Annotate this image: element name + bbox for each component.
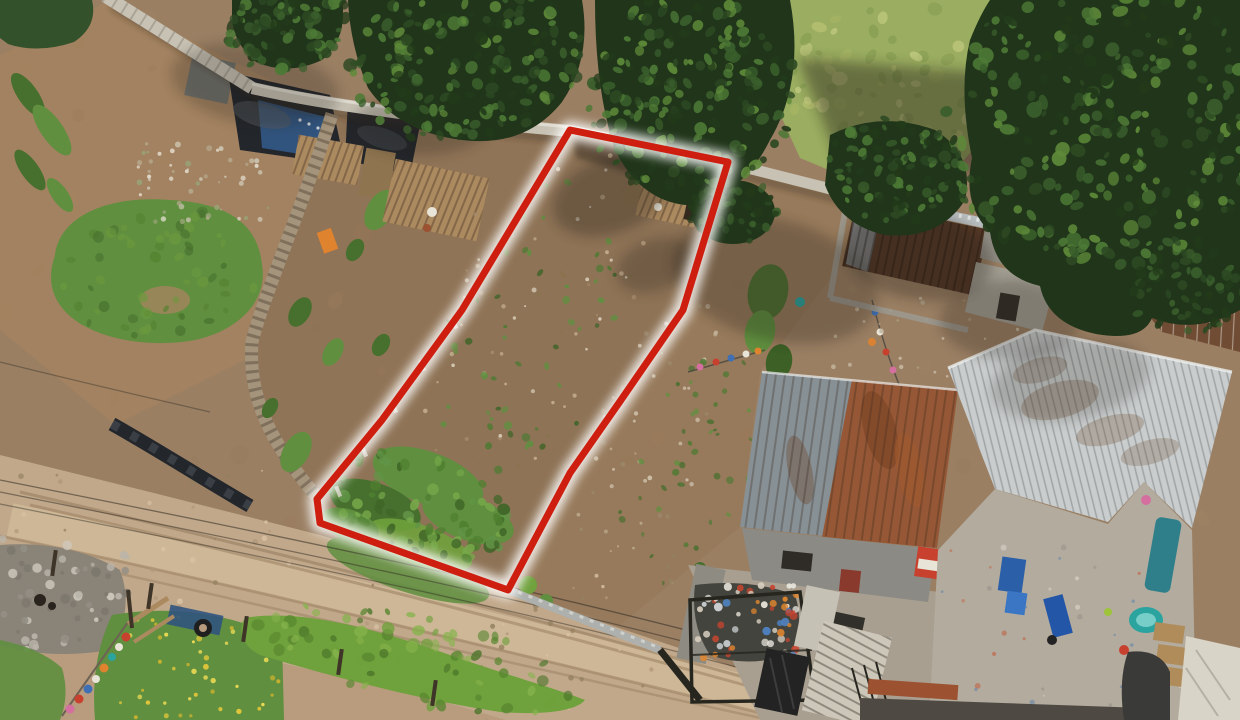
plot-debris-dot bbox=[491, 351, 495, 355]
leftyard-debris-dot bbox=[258, 217, 263, 222]
plot-debris-dot bbox=[563, 405, 566, 408]
road-stones-2-dot bbox=[570, 628, 575, 633]
leftyard-debris-dot bbox=[255, 164, 259, 168]
trash-bits-dot bbox=[702, 602, 707, 607]
road-stones-2-dot bbox=[502, 623, 504, 625]
plot-debris-dot bbox=[478, 462, 481, 465]
rubble-stones-dot bbox=[122, 567, 130, 575]
blue-crate bbox=[1005, 591, 1028, 616]
rubble-stones-dot bbox=[32, 633, 38, 639]
canopy-2-dot bbox=[429, 104, 438, 117]
rubble-stones-dot bbox=[91, 567, 101, 577]
plot-debris-dot bbox=[524, 305, 526, 307]
road-stones-2-dot bbox=[601, 585, 604, 588]
orange-pot bbox=[868, 338, 876, 346]
road-stones-dot bbox=[18, 473, 24, 479]
leftyard-debris-dot bbox=[214, 205, 219, 210]
yardtop-specks-dot bbox=[946, 375, 949, 378]
trash-bits-dot bbox=[717, 622, 724, 629]
rightstrip-debris-dot bbox=[610, 448, 613, 451]
flowers-dot bbox=[188, 697, 191, 700]
laundry-item bbox=[728, 355, 735, 362]
white-tarp bbox=[1178, 636, 1240, 720]
laundry-item bbox=[100, 664, 109, 673]
road-stones-dot bbox=[22, 512, 27, 517]
rubble-stones-dot bbox=[18, 594, 23, 599]
leftyard-debris-dot bbox=[186, 217, 191, 222]
flowers-dot bbox=[204, 655, 209, 660]
leftyard-debris-dot bbox=[196, 181, 200, 185]
flowers-dot bbox=[218, 707, 222, 711]
rightstrip-debris-dot bbox=[665, 514, 669, 518]
courtyard-specks-dot bbox=[989, 566, 992, 569]
leftyard-debris-dot bbox=[147, 151, 150, 154]
flowers-dot bbox=[271, 694, 274, 697]
leftyard-debris-dot bbox=[172, 170, 175, 173]
trash-bits-dot bbox=[732, 626, 739, 633]
rightstrip-debris-dot bbox=[638, 344, 642, 348]
trash-bits-dot bbox=[724, 583, 732, 591]
trash-bits-dot bbox=[730, 645, 736, 651]
plot-debris-dot bbox=[596, 314, 598, 316]
screenshot-stage bbox=[0, 0, 1240, 720]
flowers-dot bbox=[191, 669, 196, 674]
rubble-stones-dot bbox=[33, 644, 39, 650]
road-stones-dot bbox=[214, 538, 216, 540]
plot-debris-dot bbox=[488, 454, 491, 457]
laundry-item bbox=[108, 653, 116, 661]
rightstrip-debris-dot bbox=[610, 484, 614, 488]
yardtop-specks-dot bbox=[848, 363, 852, 367]
road-stones-2-dot bbox=[605, 596, 608, 599]
leftyard-debris-dot bbox=[206, 145, 212, 151]
trash-bits-dot bbox=[712, 636, 719, 643]
flowers-dot bbox=[158, 635, 162, 639]
road-stones-dot bbox=[190, 557, 196, 563]
rightstrip-debris-dot bbox=[577, 513, 581, 517]
road-stones-dot bbox=[490, 624, 495, 629]
road-stones-2-dot bbox=[533, 608, 537, 612]
rightstrip-debris-dot bbox=[652, 374, 656, 378]
courtyard-specks-dot bbox=[1043, 695, 1045, 697]
laundry-item bbox=[697, 364, 704, 371]
laundry-item bbox=[713, 359, 720, 366]
leftyard-debris-dot bbox=[244, 216, 248, 220]
plot-debris-dot bbox=[466, 269, 468, 271]
yardtop-specks-dot bbox=[879, 329, 884, 334]
plot-debris-dot bbox=[537, 292, 541, 296]
trash-bits-dot bbox=[723, 599, 731, 607]
road-stones-dot bbox=[264, 520, 267, 523]
canopy-3-dot bbox=[738, 95, 743, 102]
courtyard-specks-dot bbox=[1114, 634, 1116, 636]
white-bucket bbox=[427, 207, 437, 217]
plot-debris-dot bbox=[559, 271, 563, 275]
dark-vehicle-mass bbox=[1122, 651, 1170, 720]
plot-debris-dot bbox=[499, 434, 503, 438]
rubble-stones-dot bbox=[62, 541, 72, 551]
road-stones-dot bbox=[147, 501, 151, 505]
leftyard-debris-dot bbox=[199, 177, 203, 181]
trash-bits-dot bbox=[770, 600, 777, 607]
blue-crate bbox=[998, 556, 1026, 593]
leftyard-debris-dot bbox=[254, 158, 259, 163]
plot-debris-dot bbox=[535, 416, 538, 419]
rubble-stones-dot bbox=[86, 602, 92, 608]
plot-debris-dot bbox=[492, 281, 494, 283]
road-stones-2-dot bbox=[568, 675, 574, 681]
road-stones-2-dot bbox=[506, 632, 509, 635]
flowers-dot bbox=[164, 713, 169, 718]
trash-bits-dot bbox=[714, 603, 723, 612]
rightstrip-debris-dot bbox=[685, 478, 688, 481]
flowers-dot bbox=[210, 689, 214, 693]
road-stones-2-dot bbox=[581, 596, 585, 600]
flowers-dot bbox=[137, 695, 142, 700]
rightstrip-debris-dot bbox=[634, 452, 636, 454]
rightstrip-debris-dot bbox=[580, 528, 583, 531]
canopy-5-dot bbox=[1183, 44, 1197, 55]
plot-debris-dot bbox=[517, 465, 520, 468]
flowers-dot bbox=[119, 701, 122, 704]
flowers-dot bbox=[276, 679, 280, 683]
flowers-dot bbox=[257, 707, 261, 711]
laundry-item bbox=[75, 695, 84, 704]
rubble-stones-dot bbox=[20, 545, 27, 552]
rubble-stones-dot bbox=[61, 635, 70, 644]
rubble-stones-dot bbox=[21, 598, 30, 607]
trash-bits-dot bbox=[770, 585, 775, 590]
rightstrip-debris-dot bbox=[658, 513, 663, 518]
courtyard-specks-dot bbox=[1109, 703, 1113, 707]
plot-debris-dot bbox=[574, 332, 577, 335]
road-stones-dot bbox=[261, 470, 263, 472]
flowers-dot bbox=[231, 629, 236, 634]
leftyard-debris-dot bbox=[169, 164, 172, 167]
flowers-dot bbox=[172, 667, 176, 671]
flowers-dot bbox=[178, 714, 182, 718]
road-stones-dot bbox=[213, 580, 218, 585]
rubble-stones-dot bbox=[107, 563, 115, 571]
yardtop-specks-dot bbox=[897, 319, 900, 322]
rubble-stones-dot bbox=[59, 555, 66, 562]
road-stones-dot bbox=[58, 479, 63, 484]
flowers-dot bbox=[198, 650, 202, 654]
laundry-item bbox=[755, 348, 762, 355]
road-stones-dot bbox=[366, 588, 368, 590]
leftyard-debris-dot bbox=[245, 163, 248, 166]
road-stones-dot bbox=[14, 529, 18, 533]
leftyard-debris-dot bbox=[239, 181, 244, 186]
road-stones-2-dot bbox=[618, 649, 620, 651]
plot-debris-dot bbox=[465, 437, 469, 441]
road-stones-dot bbox=[161, 547, 165, 551]
plot-debris-dot bbox=[562, 274, 567, 279]
rubble-stones-dot bbox=[24, 564, 32, 572]
leftyard-debris-dot bbox=[158, 152, 162, 156]
leftyard-debris-dot bbox=[175, 142, 181, 148]
road-stones-2-dot bbox=[665, 565, 670, 570]
leftyard-debris-dot bbox=[137, 160, 142, 165]
flowers-dot bbox=[189, 714, 192, 717]
flowers-dot bbox=[158, 660, 162, 664]
laundry-item bbox=[115, 643, 123, 651]
rubble-stones-dot bbox=[25, 589, 34, 598]
trash-bits-dot bbox=[756, 600, 760, 604]
leftyard-debris-dot bbox=[237, 217, 241, 221]
plot-debris-dot bbox=[534, 457, 537, 460]
courtyard-specks-dot bbox=[1075, 605, 1080, 610]
kiddie-pool-inner bbox=[1136, 613, 1156, 627]
courtyard-specks-dot bbox=[1061, 545, 1067, 551]
leftyard-debris-dot bbox=[177, 201, 182, 206]
courtyard-specks-dot bbox=[1130, 643, 1134, 647]
rightstrip-debris-dot bbox=[617, 545, 619, 547]
leftyard-debris-dot bbox=[142, 151, 146, 155]
rubble-stones-dot bbox=[8, 569, 17, 578]
tarp-marking bbox=[316, 126, 319, 129]
rubble-stones-dot bbox=[101, 607, 109, 615]
plot-debris-dot bbox=[489, 293, 493, 297]
trash-bits-dot bbox=[791, 583, 796, 588]
rightstrip-debris-dot bbox=[689, 482, 693, 486]
flowers-dot bbox=[192, 640, 195, 643]
plot-debris-dot bbox=[531, 389, 535, 393]
courtyard-specks-dot bbox=[1077, 614, 1082, 619]
plot-debris-dot bbox=[532, 288, 537, 293]
rubble-stones-dot bbox=[19, 561, 25, 567]
plot-debris-dot bbox=[533, 237, 536, 240]
plot-debris-dot bbox=[482, 294, 486, 298]
leftyard-debris-dot bbox=[148, 178, 151, 181]
yardtop-specks-dot bbox=[917, 366, 919, 368]
plot-debris-dot bbox=[559, 329, 563, 333]
rubble-stones-dot bbox=[115, 593, 122, 600]
leftyard-debris-dot bbox=[185, 161, 191, 167]
rubble-stones-dot bbox=[21, 636, 30, 645]
trash-bits-dot bbox=[787, 623, 791, 627]
trash-bits-dot bbox=[751, 608, 757, 614]
laundry-item bbox=[84, 685, 93, 694]
leftyard-debris-dot bbox=[161, 216, 166, 221]
canopy-5-dot bbox=[1187, 108, 1194, 118]
red-door bbox=[839, 569, 861, 593]
road-stones-2-dot bbox=[641, 685, 644, 688]
trash-bits-dot bbox=[783, 597, 788, 602]
yardtop-specks-dot bbox=[899, 357, 902, 360]
laundry-item bbox=[122, 633, 131, 642]
road-stones-2-dot bbox=[599, 571, 602, 574]
laundry-item bbox=[66, 705, 75, 714]
flowers-dot bbox=[186, 663, 189, 666]
plot-debris-dot bbox=[598, 317, 601, 320]
plot-debris-dot bbox=[550, 288, 553, 291]
courtyard-specks-dot bbox=[941, 590, 944, 593]
yardtop-specks-dot bbox=[878, 323, 880, 325]
plot-debris-dot bbox=[553, 449, 556, 452]
trash-bits-dot bbox=[703, 631, 710, 638]
road-stones-2-dot bbox=[546, 654, 549, 657]
rightstrip-debris-dot bbox=[594, 456, 598, 460]
flowers-dot bbox=[203, 675, 208, 680]
plot-debris-dot bbox=[587, 283, 590, 286]
road-stones-dot bbox=[154, 596, 158, 600]
leftyard-debris-dot bbox=[147, 187, 150, 190]
rubble-stones-dot bbox=[44, 569, 51, 576]
road-stones-2-dot bbox=[572, 587, 574, 589]
rightstrip-debris-dot bbox=[687, 387, 690, 390]
laundry-item bbox=[743, 351, 750, 358]
road-stones-dot bbox=[64, 529, 67, 532]
rubble-stones-dot bbox=[32, 563, 42, 573]
rightstrip-debris-dot bbox=[610, 550, 612, 552]
flowers-dot bbox=[270, 675, 275, 680]
leftyard-debris-dot bbox=[206, 217, 209, 220]
rightstrip-debris-dot bbox=[668, 361, 672, 365]
rightstrip-debris-dot bbox=[640, 522, 643, 525]
flowers-dot bbox=[225, 642, 228, 645]
dark-animal bbox=[34, 594, 46, 606]
rubble-stones-dot bbox=[75, 615, 81, 621]
leftyard-debris-dot bbox=[267, 207, 269, 209]
rightstrip-debris-dot bbox=[612, 468, 615, 471]
plot-debris-dot bbox=[474, 212, 479, 217]
plot-debris-dot bbox=[551, 401, 554, 404]
laundry-item bbox=[92, 675, 100, 683]
trash-bits-dot bbox=[770, 606, 775, 611]
main-house-corrugation bbox=[740, 372, 958, 548]
rubble-stones-dot bbox=[98, 618, 103, 623]
leftyard-debris-dot bbox=[258, 170, 263, 175]
rightstrip-debris-dot bbox=[695, 418, 700, 423]
flowers-dot bbox=[134, 715, 138, 719]
road-stones-2-dot bbox=[649, 667, 653, 671]
trash-bits-dot bbox=[758, 582, 765, 589]
rubble-stones-dot bbox=[94, 617, 99, 622]
flowers-dot bbox=[163, 701, 166, 704]
yardtop-specks-dot bbox=[831, 364, 836, 369]
flowers-dot bbox=[264, 658, 269, 663]
bike-wheel bbox=[1047, 635, 1057, 645]
rightstrip-debris-dot bbox=[620, 462, 625, 467]
courtyard-specks-dot bbox=[1002, 631, 1007, 636]
rubble-stones-dot bbox=[90, 608, 94, 612]
leftyard-debris-dot bbox=[220, 209, 222, 211]
clay-pot bbox=[423, 224, 431, 232]
leftyard-debris-dot bbox=[148, 170, 151, 173]
yardtop-specks-dot bbox=[934, 371, 937, 374]
rightstrip-debris-dot bbox=[647, 476, 652, 481]
trash-bits-dot bbox=[762, 627, 770, 635]
courtyard-specks-dot bbox=[1093, 566, 1096, 569]
road-stones-dot bbox=[374, 624, 379, 629]
leftyard-debris-dot bbox=[170, 149, 175, 154]
trash-bits-dot bbox=[785, 609, 792, 616]
road-stones-2-dot bbox=[567, 633, 571, 637]
rubble-stones-dot bbox=[7, 546, 16, 555]
plot-debris-dot bbox=[610, 259, 613, 262]
road-stones-2-dot bbox=[668, 578, 673, 583]
plot-debris-dot bbox=[585, 348, 588, 351]
road-stones-dot bbox=[262, 536, 267, 541]
rubble-stones-dot bbox=[83, 566, 88, 571]
leftyard-debris-dot bbox=[147, 175, 151, 179]
leftyard-debris-dot bbox=[241, 176, 246, 181]
courtyard-specks-dot bbox=[1058, 557, 1061, 560]
yardtop-specks-dot bbox=[899, 365, 903, 369]
plot-debris-dot bbox=[573, 394, 577, 398]
rightstrip-debris-dot bbox=[604, 530, 608, 534]
plot-debris-dot bbox=[566, 342, 569, 345]
courtyard-specks-dot bbox=[1023, 637, 1026, 640]
road-stones-2-dot bbox=[499, 645, 505, 651]
rubble-stones-dot bbox=[45, 580, 54, 589]
rightstrip-debris-dot bbox=[633, 420, 636, 423]
road-stones-dot bbox=[268, 530, 270, 532]
leftyard-debris-dot bbox=[145, 142, 148, 145]
trash-bits-dot bbox=[737, 585, 744, 592]
road-stones-dot bbox=[226, 475, 230, 479]
trash-bits-dot bbox=[761, 601, 768, 608]
lime-item bbox=[1104, 608, 1112, 616]
road-stones-2-dot bbox=[579, 677, 584, 682]
plot-debris-dot bbox=[465, 278, 469, 282]
rubble-stones-dot bbox=[91, 563, 95, 567]
flowers-dot bbox=[203, 664, 209, 670]
leftyard-debris-dot bbox=[169, 177, 173, 181]
courtyard-specks-dot bbox=[992, 652, 996, 656]
plot-debris-dot bbox=[423, 409, 428, 414]
plot-debris-dot bbox=[513, 316, 516, 319]
courtyard-specks-dot bbox=[1001, 545, 1007, 551]
road-stones-2-dot bbox=[595, 574, 599, 578]
dark-animal bbox=[48, 602, 56, 610]
rubble-stones-dot bbox=[77, 637, 81, 641]
plot-debris-dot bbox=[605, 250, 609, 254]
trash-bits-dot bbox=[772, 628, 777, 633]
rubble-stones-dot bbox=[125, 555, 130, 560]
flowers-dot bbox=[164, 633, 168, 637]
pink-item bbox=[1141, 495, 1151, 505]
leftyard-debris-dot bbox=[188, 189, 193, 194]
leftyard-debris-dot bbox=[137, 165, 140, 168]
leftyard-debris-dot bbox=[180, 219, 185, 224]
leftyard-debris-dot bbox=[153, 220, 157, 224]
flowers-dot bbox=[236, 709, 241, 714]
plot-debris-dot bbox=[451, 364, 455, 368]
plot-grass-dot bbox=[425, 523, 433, 535]
plot-debris-dot bbox=[436, 381, 438, 383]
leftyard-debris-dot bbox=[163, 210, 166, 213]
courtyard-specks-dot bbox=[1048, 588, 1051, 591]
rubble-stones-dot bbox=[1, 611, 8, 618]
plot-debris-dot bbox=[632, 295, 637, 300]
courtyard-specks-dot bbox=[1132, 600, 1135, 603]
leftyard-debris-dot bbox=[149, 159, 153, 163]
courtyard-specks-dot bbox=[974, 688, 977, 691]
flowers-dot bbox=[141, 689, 144, 692]
aerial-photograph bbox=[0, 0, 1240, 720]
leftyard-debris-dot bbox=[139, 193, 142, 196]
road-stones-dot bbox=[371, 584, 374, 587]
trash-bits-dot bbox=[786, 638, 790, 642]
trash-bits-dot bbox=[723, 640, 730, 647]
rightstrip-weeds-dot bbox=[662, 581, 665, 585]
trash-bits-dot bbox=[736, 612, 741, 617]
leftyard-debris-dot bbox=[249, 158, 254, 163]
rubble-stones-dot bbox=[60, 594, 70, 604]
trash-bits-dot bbox=[717, 643, 723, 649]
